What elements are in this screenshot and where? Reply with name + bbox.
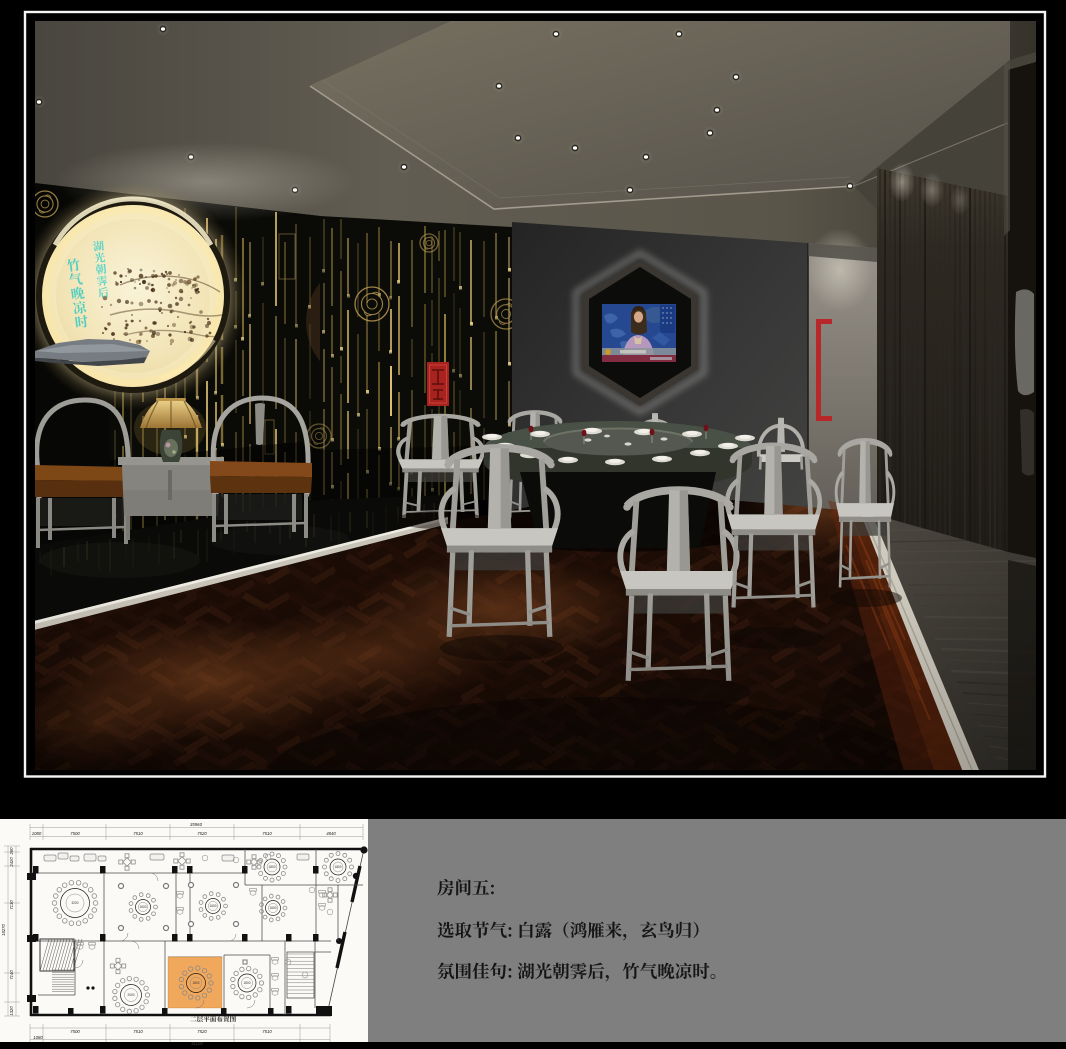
svg-text:1600: 1600 [269, 906, 276, 910]
svg-text:7500: 7500 [70, 1029, 80, 1034]
svg-text:7130: 7130 [9, 900, 14, 910]
svg-text:1320: 1320 [9, 1006, 14, 1016]
svg-text:1800: 1800 [243, 981, 250, 985]
svg-text:3200: 3200 [71, 901, 78, 905]
svg-text:1800: 1800 [192, 981, 199, 985]
svg-text:2000: 2000 [127, 993, 134, 997]
svg-text:7140: 7140 [9, 970, 14, 980]
svg-text:260: 260 [9, 847, 14, 856]
svg-text:1600: 1600 [209, 904, 216, 908]
svg-text:1080: 1080 [33, 1035, 43, 1040]
svg-text:1600: 1600 [139, 905, 146, 909]
svg-text:7510: 7510 [133, 1029, 143, 1034]
svg-text:7510: 7510 [262, 1029, 272, 1034]
svg-text:7500: 7500 [70, 831, 80, 836]
svg-text:1080: 1080 [32, 831, 42, 836]
svg-text:7520: 7520 [197, 831, 207, 836]
svg-text:2420: 2420 [9, 857, 14, 868]
svg-text:1800: 1800 [334, 865, 341, 869]
svg-text:31120: 31120 [191, 1041, 203, 1046]
svg-text:18270: 18270 [1, 924, 6, 936]
svg-text:7510: 7510 [262, 831, 272, 836]
svg-text:4840: 4840 [326, 831, 336, 836]
svg-text:7520: 7520 [197, 1029, 207, 1034]
svg-text:7510: 7510 [133, 831, 143, 836]
svg-text:1800: 1800 [268, 865, 275, 869]
svg-text:35960: 35960 [190, 822, 203, 827]
